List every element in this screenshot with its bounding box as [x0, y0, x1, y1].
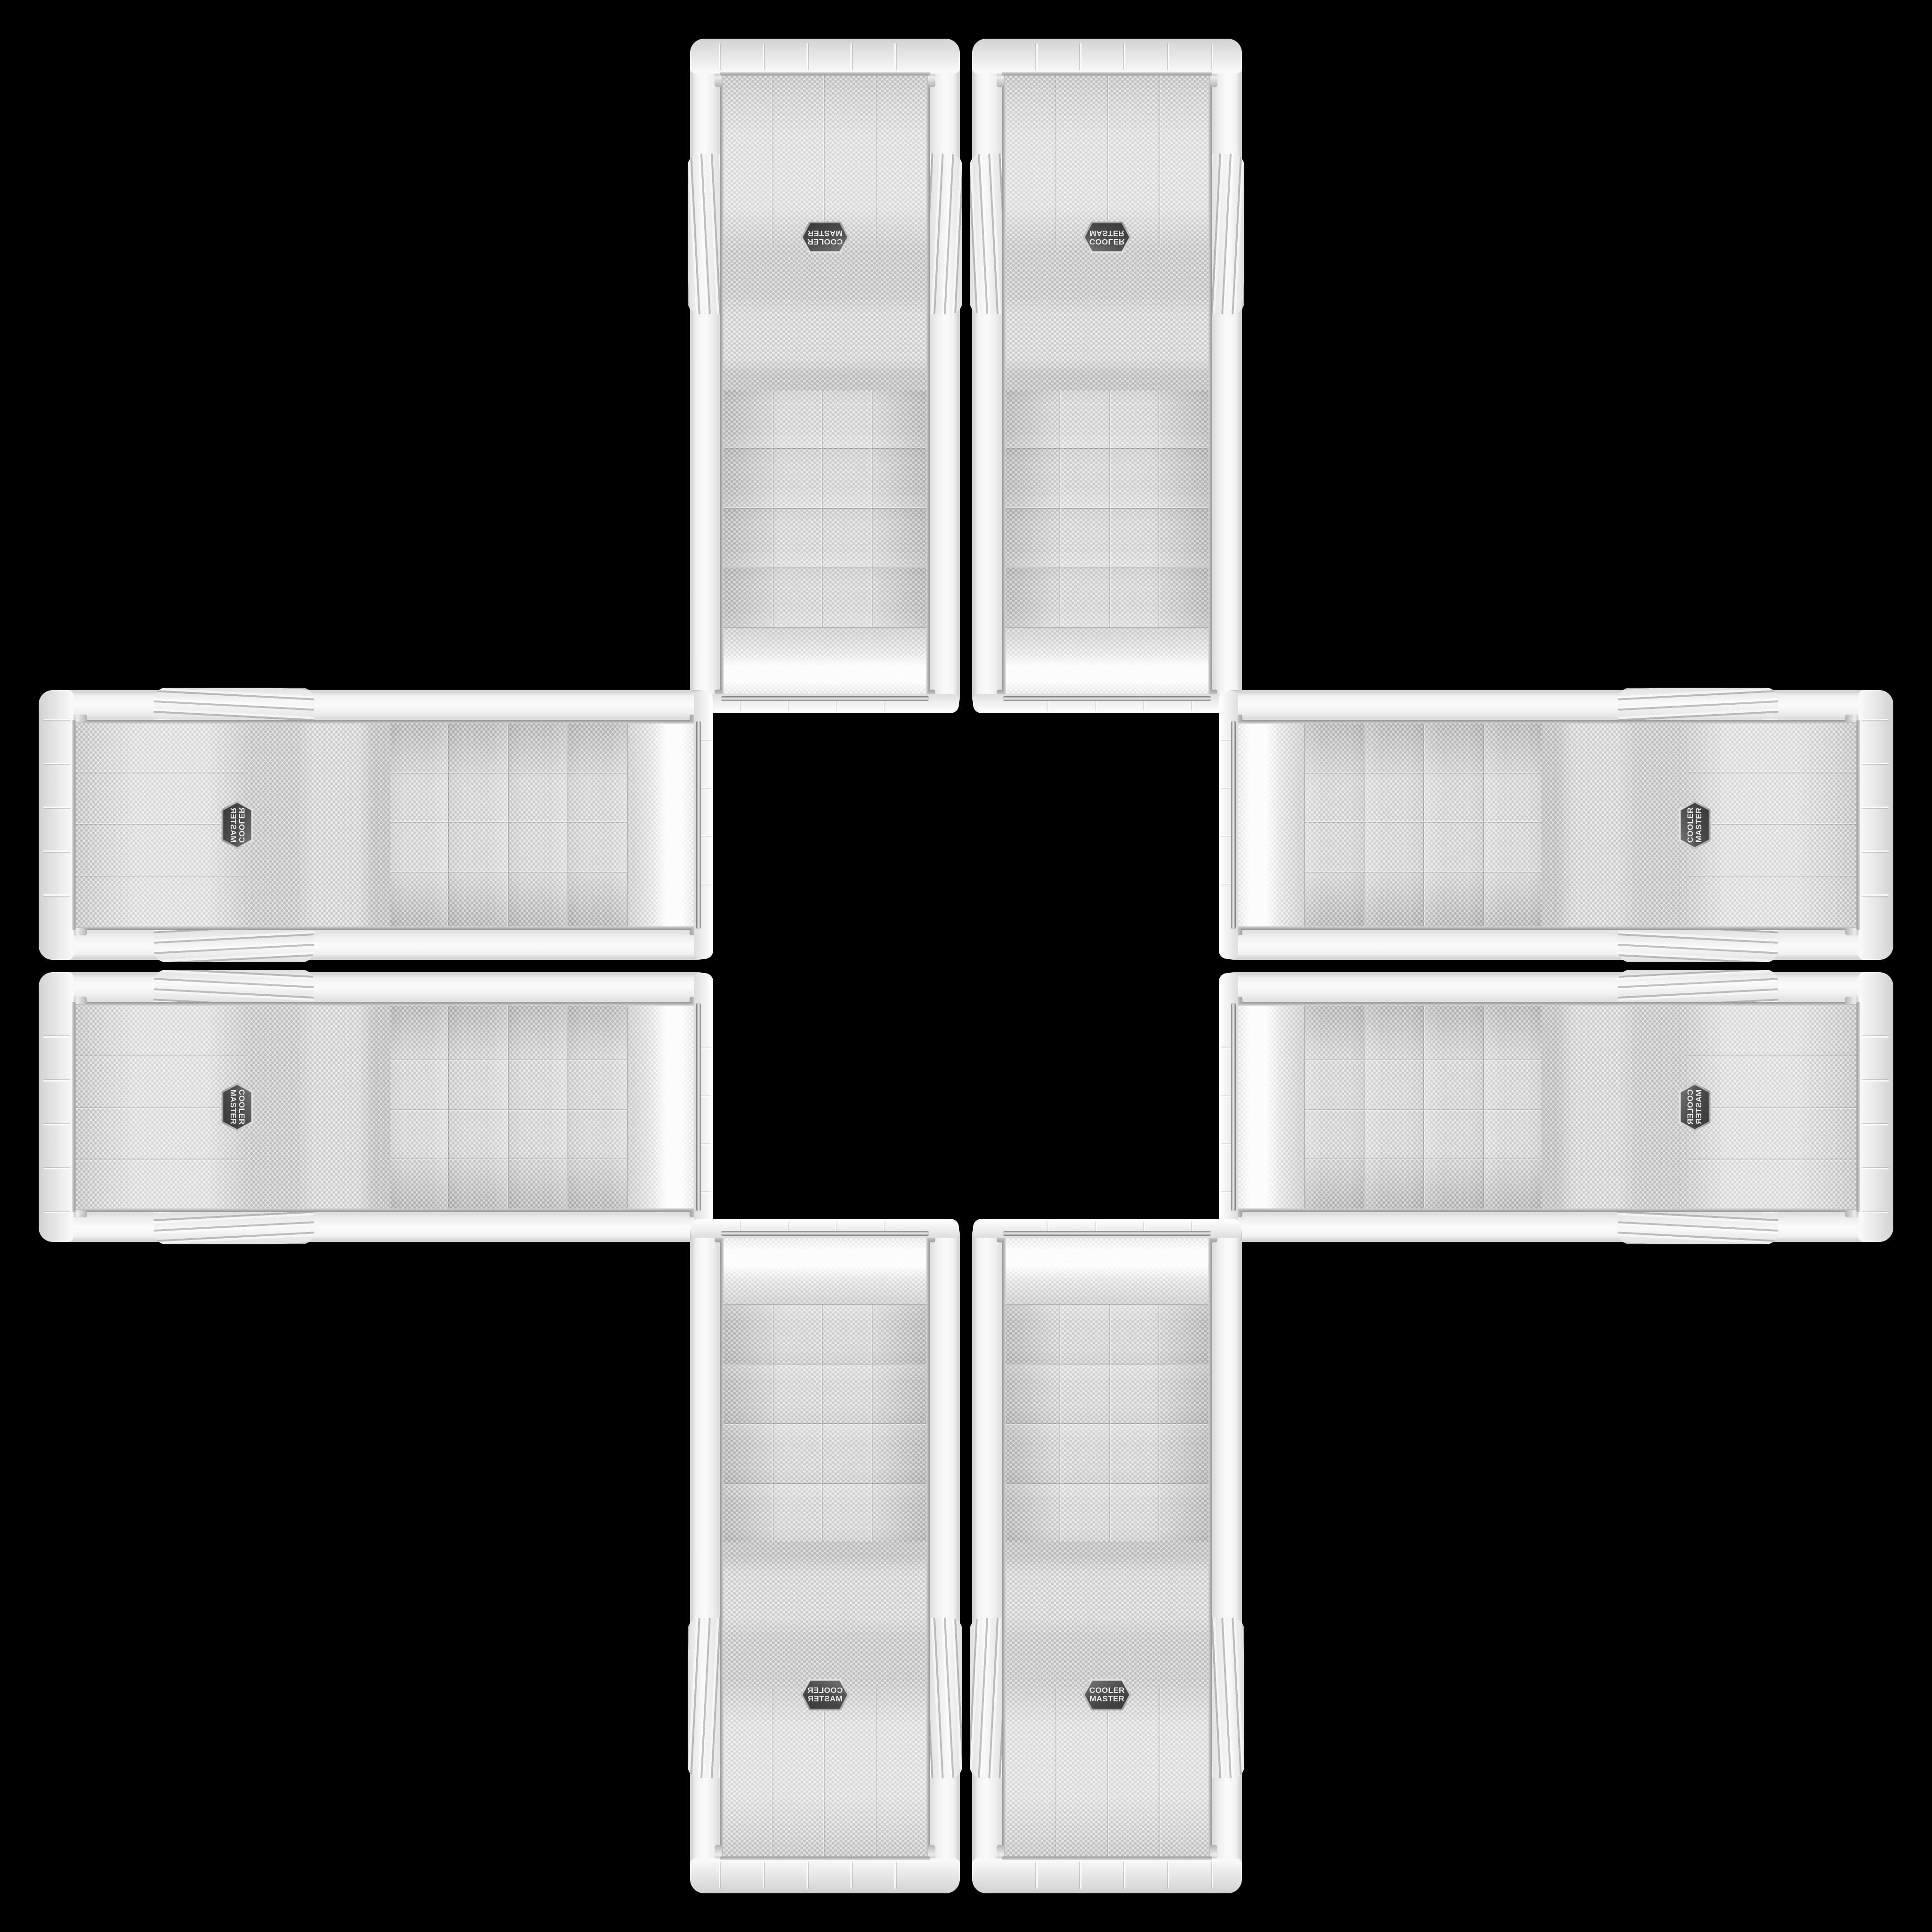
drive-bay-cover: [724, 1424, 926, 1484]
front-panel-face: COOLER MASTER: [39, 724, 713, 926]
front-panel-face: COOLER MASTER: [1219, 724, 1893, 926]
cooler-master-logo-badge: COOLER MASTER: [220, 801, 255, 849]
drive-bay-cover: [389, 724, 449, 926]
logo-text-line1: COOLER: [237, 1089, 246, 1124]
front-panel-face: COOLER MASTER: [1006, 1219, 1208, 1893]
top-mesh-grille: [1006, 627, 1208, 697]
top-mesh-grille: [724, 627, 926, 697]
drive-bay-cover: [1006, 1305, 1208, 1365]
chrome-strip-left: [926, 1238, 930, 1858]
chrome-strip-left: [1238, 926, 1858, 930]
drive-bay-cover: [508, 724, 568, 926]
logo-text-line2: MASTER: [1090, 229, 1124, 237]
drive-bay-area: [1305, 1006, 1541, 1208]
case-left-bottom: COOLER MASTER: [39, 972, 713, 1242]
drive-bay-cover: [568, 724, 628, 926]
logo-text-line2: MASTER: [1695, 808, 1703, 842]
drive-bay-cover: [724, 568, 926, 628]
logo-badge-face: COOLER MASTER: [803, 222, 847, 253]
logo-badge-face: COOLER MASTER: [803, 1679, 847, 1710]
top-chrome-trim: [1231, 721, 1236, 929]
chrome-strip-right: [1208, 74, 1212, 694]
drive-bay-area: [1305, 724, 1541, 926]
top-mesh-grille: [724, 1235, 926, 1305]
bottom-chrome-trim: [1857, 720, 1860, 930]
pc-case-front-panel: COOLER MASTER: [690, 1219, 960, 1893]
pc-case-front-panel: COOLER MASTER: [39, 690, 713, 960]
case-right-bottom: COOLER MASTER: [1219, 972, 1893, 1242]
pc-case-front-panel: COOLER MASTER: [1219, 972, 1893, 1242]
drive-bay-cover: [724, 508, 926, 568]
chrome-strip-right: [1208, 1238, 1212, 1858]
cooler-master-logo-badge: COOLER MASTER: [1677, 1083, 1712, 1131]
bottom-chrome-trim: [1857, 1002, 1860, 1212]
drive-bay-cover: [1305, 1006, 1365, 1208]
drive-bay-cover: [568, 1006, 628, 1208]
drive-bay-cover: [449, 724, 508, 926]
pc-case-front-panel: COOLER MASTER: [39, 972, 713, 1242]
logo-text-line2: MASTER: [229, 808, 237, 842]
pc-case-front-panel: COOLER MASTER: [1219, 690, 1893, 960]
drive-bay-cover: [1006, 1424, 1208, 1484]
bottom-bezel: [690, 1858, 960, 1893]
cooler-master-logo-badge: COOLER MASTER: [1677, 801, 1712, 849]
front-panel-face: COOLER MASTER: [1006, 39, 1208, 713]
drive-bay-cover: [724, 1365, 926, 1424]
logo-text-line1: COOLER: [237, 807, 246, 842]
top-mesh-grille: [1006, 1235, 1208, 1305]
bottom-bezel: [39, 972, 74, 1242]
cooler-master-logo-badge: COOLER MASTER: [1083, 1677, 1131, 1712]
logo-text-line2: MASTER: [229, 1090, 237, 1124]
top-chrome-trim: [1003, 1231, 1211, 1236]
drive-bay-cover: [724, 389, 926, 449]
bottom-bezel: [972, 39, 1242, 74]
drive-bay-area: [1006, 391, 1208, 627]
logo-badge-face: COOLER MASTER: [222, 803, 253, 847]
top-mesh-grille: [1235, 1006, 1305, 1208]
logo-text-line2: MASTER: [1695, 1090, 1703, 1124]
top-chrome-trim: [1003, 696, 1211, 701]
top-mesh-grille: [627, 724, 697, 926]
cooler-master-logo-badge: COOLER MASTER: [801, 1677, 849, 1712]
pc-case-front-panel: COOLER MASTER: [972, 1219, 1242, 1893]
bottom-chrome-trim: [720, 72, 930, 75]
drive-bay-cover: [1006, 508, 1208, 568]
top-chrome-trim: [721, 1231, 929, 1236]
front-panel-face: COOLER MASTER: [1219, 1006, 1893, 1208]
drive-bay-cover: [1365, 724, 1424, 926]
drive-bay-area: [1006, 1305, 1208, 1541]
drive-bay-cover: [1006, 389, 1208, 449]
front-panel-face: COOLER MASTER: [39, 1006, 713, 1208]
pc-case-front-panel: COOLER MASTER: [690, 39, 960, 713]
logo-badge-face: COOLER MASTER: [222, 1085, 253, 1129]
front-panel-face: COOLER MASTER: [724, 1219, 926, 1893]
drive-bay-cover: [1006, 568, 1208, 628]
bottom-bezel: [1858, 690, 1893, 960]
chrome-strip-right: [1238, 1208, 1858, 1212]
chrome-strip-left: [74, 926, 694, 930]
drive-bay-cover: [1484, 724, 1544, 926]
top-chrome-trim: [1231, 1003, 1236, 1211]
logo-badge-face: COOLER MASTER: [1085, 222, 1129, 253]
drive-bay-area: [724, 1305, 926, 1541]
logo-text-line2: MASTER: [808, 229, 842, 237]
bottom-bezel: [690, 39, 960, 74]
chrome-strip-left: [926, 74, 930, 694]
drive-bay-cover: [1365, 1006, 1424, 1208]
case-bottom-left: COOLER MASTER: [690, 1219, 960, 1893]
drive-bay-cover: [1424, 724, 1484, 926]
drive-bay-area: [724, 391, 926, 627]
drive-bay-cover: [1305, 724, 1365, 926]
bottom-chrome-trim: [1002, 72, 1212, 75]
drive-bay-cover: [449, 1006, 508, 1208]
collage-stage: COOLER MASTER: [0, 0, 1932, 1932]
case-right-top: COOLER MASTER: [1219, 690, 1893, 960]
case-top-left: COOLER MASTER: [690, 39, 960, 713]
logo-text-line1: COOLER: [1089, 237, 1124, 246]
case-left-top: COOLER MASTER: [39, 690, 713, 960]
case-bottom-right: COOLER MASTER: [972, 1219, 1242, 1893]
front-panel-face: COOLER MASTER: [724, 39, 926, 713]
chrome-strip-right: [74, 1208, 694, 1212]
drive-bay-area: [391, 1006, 627, 1208]
case-top-right: COOLER MASTER: [972, 39, 1242, 713]
top-chrome-trim: [696, 1003, 701, 1211]
drive-bay-cover: [724, 449, 926, 508]
drive-bay-area: [391, 724, 627, 926]
bottom-bezel: [39, 690, 74, 960]
drive-bay-cover: [1424, 1006, 1484, 1208]
top-chrome-trim: [696, 721, 701, 929]
bottom-chrome-trim: [72, 720, 75, 930]
logo-text-line2: MASTER: [1090, 1695, 1124, 1703]
top-mesh-grille: [627, 1006, 697, 1208]
logo-text-line1: COOLER: [1089, 1686, 1124, 1695]
pc-case-front-panel: COOLER MASTER: [972, 39, 1242, 713]
drive-bay-cover: [1484, 1006, 1544, 1208]
bottom-bezel: [972, 1858, 1242, 1893]
drive-bay-cover: [1006, 449, 1208, 508]
bottom-chrome-trim: [720, 1857, 930, 1860]
bottom-chrome-trim: [1002, 1857, 1212, 1860]
cooler-master-logo-badge: COOLER MASTER: [801, 220, 849, 255]
drive-bay-cover: [724, 1305, 926, 1365]
bottom-bezel: [1858, 972, 1893, 1242]
drive-bay-cover: [389, 1006, 449, 1208]
logo-badge-face: COOLER MASTER: [1679, 1085, 1710, 1129]
logo-badge-face: COOLER MASTER: [1085, 1679, 1129, 1710]
logo-text-line2: MASTER: [808, 1695, 842, 1703]
logo-text-line1: COOLER: [807, 237, 842, 246]
logo-text-line1: COOLER: [1686, 807, 1695, 842]
logo-badge-face: COOLER MASTER: [1679, 803, 1710, 847]
cooler-master-logo-badge: COOLER MASTER: [1083, 220, 1131, 255]
drive-bay-cover: [724, 1484, 926, 1544]
drive-bay-cover: [1006, 1365, 1208, 1424]
drive-bay-cover: [1006, 1484, 1208, 1544]
top-chrome-trim: [721, 696, 929, 701]
logo-text-line1: COOLER: [807, 1686, 842, 1695]
drive-bay-cover: [508, 1006, 568, 1208]
bottom-chrome-trim: [72, 1002, 75, 1212]
logo-text-line1: COOLER: [1686, 1089, 1695, 1124]
cooler-master-logo-badge: COOLER MASTER: [220, 1083, 255, 1131]
top-mesh-grille: [1235, 724, 1305, 926]
